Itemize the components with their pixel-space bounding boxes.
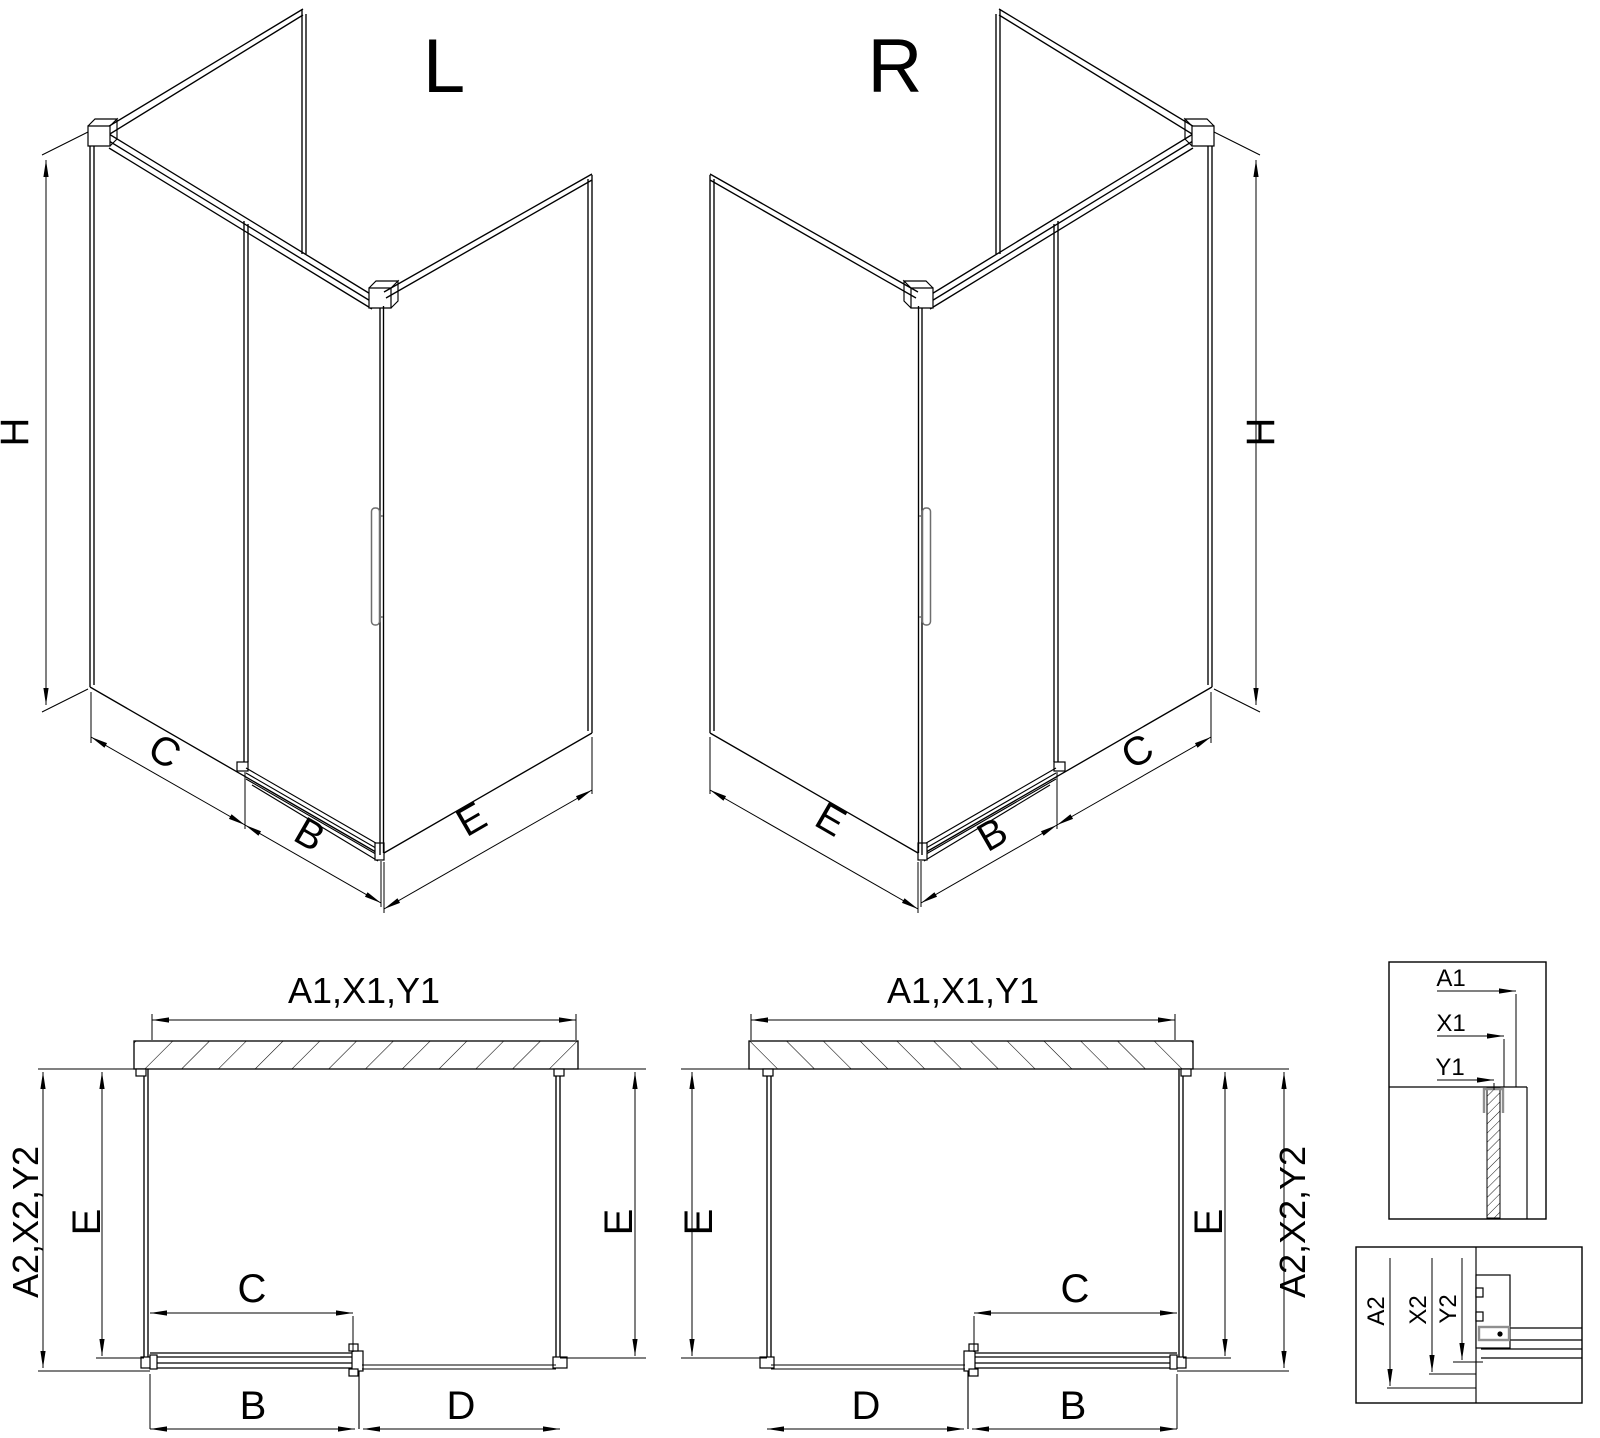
detail-box-bottom: A2 X2 Y2 [1356,1247,1582,1403]
technical-drawing-canvas: L H C B E R H C B E A1,X1,Y1 A2,X2,Y2 E … [0,0,1600,1438]
plan-right-depth-right: E [1187,1209,1231,1236]
plan-right-depth-left: E [677,1209,721,1236]
profile-notch-2 [1476,1312,1483,1321]
glass-section-hatched [1487,1088,1500,1218]
plan-right-top-dim: A1,X1,Y1 [887,970,1039,1011]
plan-left-top-dim: A1,X1,Y1 [288,970,440,1011]
detail-label-y1: Y1 [1435,1054,1464,1081]
plan-right-open-dim: D [852,1384,881,1428]
plan-left-depth-right: E [597,1209,641,1236]
detail-label-x1: X1 [1436,1010,1465,1037]
detail-label-a1: A1 [1436,965,1465,992]
detail-top-frame [1389,962,1546,1219]
plan-right-outer-dim: A2,X2,Y2 [1272,1146,1313,1298]
iso-right-title: R [868,24,923,109]
iso-view-left: L H C B E [0,9,592,913]
plan-left-outer-dim: A2,X2,Y2 [5,1146,46,1298]
dim-label-e-right: E [808,794,853,845]
detail-label-a2: A2 [1363,1296,1390,1325]
plan-left-open-dim: D [447,1384,476,1428]
detail-label-x2: X2 [1405,1295,1432,1324]
dim-label-h-left: H [0,418,37,447]
plan-left-slide-dim: C [238,1267,267,1311]
fixing-screw-dot [1497,1331,1502,1336]
plan-view-right: A1,X1,Y1 A2,X2,Y2 E E C B D [677,970,1313,1429]
iso-left-title: L [423,24,465,109]
plan-view-left: A1,X1,Y1 A2,X2,Y2 E E C B D [5,970,646,1429]
iso-right-geometry [710,9,1260,913]
dim-label-h-right: H [1239,418,1283,447]
iso-left-geometry [42,9,592,913]
plan-right-door-dim: B [1060,1384,1087,1428]
iso-view-right: R H C B E [710,9,1283,913]
plan-right-slide-dim: C [1061,1267,1090,1311]
plan-left-geometry [38,1014,646,1429]
plan-left-door-dim: B [240,1384,267,1428]
plan-left-depth-left: E [65,1209,109,1236]
detail-box-top: A1 X1 Y1 [1389,962,1546,1219]
dim-label-e-left: E [449,794,494,845]
profile-notch-1 [1476,1288,1483,1297]
detail-label-y2: Y2 [1435,1294,1462,1323]
drawing-sheet: L H C B E R H C B E A1,X1,Y1 A2,X2,Y2 E … [0,0,1600,1438]
